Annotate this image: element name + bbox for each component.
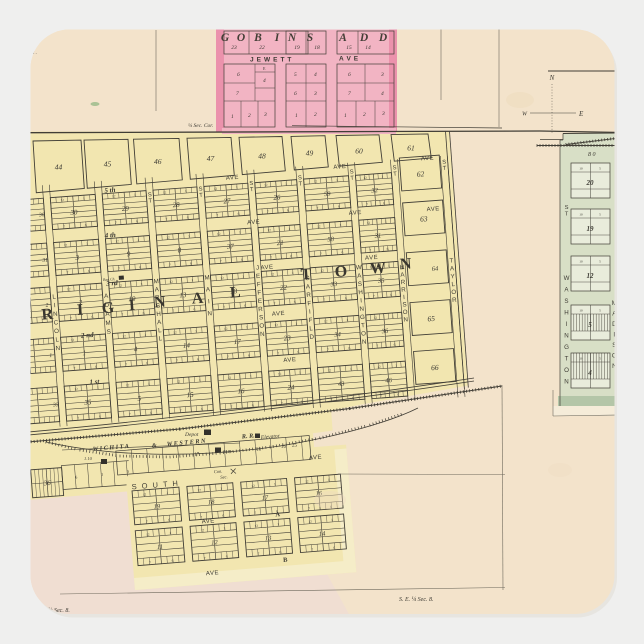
svg-text:W: W (356, 264, 362, 271)
svg-text:6: 6 (294, 91, 297, 97)
svg-text:I: I (128, 297, 135, 314)
svg-text:T: T (361, 322, 366, 329)
svg-text:H: H (156, 311, 161, 318)
svg-text:N: N (260, 331, 265, 338)
svg-text:1: 1 (82, 349, 86, 357)
svg-text:15: 15 (186, 391, 194, 400)
svg-text:15: 15 (346, 45, 352, 51)
svg-text:AVE: AVE (333, 164, 346, 171)
svg-text:13: 13 (179, 291, 187, 300)
svg-text:12: 12 (363, 176, 367, 180)
svg-text:14: 14 (183, 341, 191, 350)
svg-text:18: 18 (314, 45, 320, 51)
svg-text:20: 20 (586, 179, 595, 187)
svg-text:5: 5 (294, 72, 297, 78)
svg-text:AVE: AVE (283, 357, 296, 364)
svg-text:12: 12 (177, 379, 181, 383)
svg-text:12: 12 (308, 520, 312, 524)
svg-text:12: 12 (314, 179, 318, 183)
svg-text:1: 1 (231, 114, 234, 120)
svg-text:22: 22 (259, 45, 265, 51)
svg-text:12: 12 (60, 198, 64, 202)
svg-text:24: 24 (287, 383, 295, 392)
svg-text:16: 16 (237, 387, 245, 396)
svg-text:12: 12 (143, 493, 147, 497)
svg-text:12: 12 (197, 488, 201, 492)
svg-text:D: D (359, 32, 369, 44)
svg-text:1: 1 (344, 113, 347, 119)
svg-text:21: 21 (276, 239, 284, 247)
svg-text:O: O (402, 309, 407, 316)
svg-text:12: 12 (118, 283, 122, 287)
svg-text:11: 11 (157, 544, 164, 551)
svg-text:7: 7 (236, 91, 239, 97)
svg-text:T: T (449, 257, 454, 264)
svg-text:12: 12 (324, 319, 328, 323)
svg-text:N: N (287, 32, 297, 44)
svg-text:E: E (258, 298, 263, 305)
svg-text:5: 5 (127, 469, 129, 474)
svg-text:12: 12 (201, 528, 205, 532)
svg-text:S: S (565, 205, 569, 211)
svg-text:12: 12 (173, 330, 177, 334)
svg-text:29: 29 (122, 204, 130, 213)
svg-text:12: 12 (220, 276, 224, 280)
svg-text:4: 4 (381, 90, 384, 97)
svg-text:12: 12 (278, 372, 282, 376)
svg-text:E: E (256, 273, 261, 280)
svg-text:Depot: Depot (184, 432, 199, 438)
svg-text:AVE: AVE (309, 455, 323, 462)
svg-text:45: 45 (104, 160, 112, 169)
svg-text:4: 4 (263, 77, 266, 84)
svg-text:B: B (253, 32, 262, 44)
svg-text:AVE: AVE (206, 570, 220, 577)
svg-text:22: 22 (280, 284, 288, 293)
svg-text:N: N (53, 311, 58, 318)
svg-text:35: 35 (377, 277, 386, 285)
svg-text:35: 35 (52, 402, 59, 408)
svg-text:12: 12 (264, 183, 268, 187)
svg-text:M.H.: M.H. (222, 449, 232, 454)
svg-text:7: 7 (348, 91, 351, 97)
svg-text:6: 6 (237, 72, 240, 78)
svg-text:12: 12 (67, 287, 71, 291)
svg-text:12: 12 (251, 484, 255, 488)
svg-text:17: 17 (234, 338, 242, 347)
svg-text:F: F (307, 300, 312, 307)
svg-text:12: 12 (328, 368, 332, 372)
svg-text:N: N (207, 310, 212, 317)
svg-text:1 st: 1 st (89, 378, 101, 387)
svg-text:10: 10 (579, 357, 583, 361)
svg-text:23: 23 (231, 45, 237, 51)
svg-text:5: 5 (588, 321, 592, 329)
svg-text:12: 12 (163, 190, 167, 194)
svg-text:6: 6 (348, 72, 351, 78)
svg-text:12: 12 (587, 272, 595, 280)
svg-text:12: 12 (367, 221, 371, 225)
svg-text:12: 12 (74, 387, 78, 391)
svg-text:2 nd: 2 nd (80, 331, 95, 340)
svg-text:G: G (360, 314, 365, 321)
svg-text:E: E (578, 110, 584, 118)
svg-text:27: 27 (223, 197, 231, 206)
svg-text:A: A (191, 290, 204, 308)
svg-text:12: 12 (254, 524, 258, 528)
svg-text:AVE: AVE (349, 210, 362, 217)
svg-text:J: J (256, 265, 260, 272)
svg-text:N: N (564, 333, 568, 340)
svg-text:12: 12 (115, 239, 119, 243)
svg-text:10: 10 (579, 213, 583, 217)
svg-text:O: O (361, 330, 366, 337)
svg-text:12: 12 (274, 323, 278, 327)
svg-text:S: S (307, 32, 313, 44)
svg-text:W: W (369, 259, 386, 277)
svg-text:A: A (275, 511, 281, 518)
svg-text:3: 3 (380, 72, 384, 78)
svg-text:D: D (378, 32, 388, 44)
svg-text:G: G (101, 299, 115, 317)
svg-text:G: G (564, 344, 569, 351)
svg-text:3: 3 (381, 111, 385, 117)
svg-text:5: 5 (599, 260, 601, 264)
svg-text:10: 10 (579, 167, 583, 171)
svg-text:34: 34 (333, 331, 342, 339)
svg-text:H: H (564, 310, 568, 317)
svg-text:12: 12 (320, 269, 324, 273)
svg-text:R: R (41, 306, 54, 324)
svg-text:5: 5 (599, 167, 601, 171)
svg-text:N: N (153, 294, 166, 312)
svg-text:36: 36 (42, 479, 51, 488)
svg-text:10: 10 (579, 260, 583, 264)
svg-text:12: 12 (71, 338, 75, 342)
svg-text:I: I (274, 32, 280, 44)
svg-text:N: N (55, 345, 60, 352)
svg-text:1.10: 1.10 (84, 456, 93, 461)
svg-text:62: 62 (416, 169, 424, 179)
svg-text:2: 2 (363, 112, 366, 118)
svg-text:31: 31 (41, 258, 48, 264)
svg-text:S: S (259, 314, 264, 321)
svg-text:8 0: 8 0 (588, 152, 596, 158)
svg-text:2: 2 (314, 112, 317, 118)
svg-text:F: F (257, 289, 262, 296)
svg-text:AVE: AVE (272, 311, 285, 318)
svg-text:L: L (229, 284, 241, 302)
svg-text:O: O (237, 32, 245, 44)
svg-text:4: 4 (314, 71, 317, 78)
svg-text:Y: Y (450, 273, 455, 280)
svg-text:31: 31 (374, 233, 382, 241)
svg-text:12: 12 (112, 194, 116, 198)
svg-text:44: 44 (55, 162, 63, 171)
svg-text:12: 12 (377, 365, 381, 369)
svg-text:28: 28 (172, 201, 180, 210)
svg-text:12: 12 (217, 232, 221, 236)
svg-text:5: 5 (599, 309, 601, 313)
svg-text:47: 47 (207, 154, 215, 163)
svg-text:Con.: Con. (214, 469, 223, 475)
svg-text:N: N (564, 379, 568, 386)
svg-text:G: G (221, 32, 230, 44)
svg-text:N: N (549, 74, 555, 82)
svg-text:12: 12 (64, 243, 68, 247)
svg-text:A V E: A V E (339, 56, 359, 63)
svg-text:12: 12 (224, 327, 228, 331)
svg-text:I: I (566, 321, 568, 328)
svg-text:¼ Sec. Cor.: ¼ Sec. Cor. (188, 123, 213, 129)
svg-text:S: S (106, 329, 111, 336)
svg-text:O: O (54, 328, 59, 335)
svg-text:5: 5 (599, 213, 601, 217)
svg-text:19: 19 (587, 225, 595, 233)
svg-text:3: 3 (313, 91, 317, 97)
svg-text:61: 61 (407, 143, 415, 152)
svg-text:O: O (334, 263, 348, 281)
svg-text:5 th: 5 th (104, 186, 116, 195)
svg-text:AVE: AVE (247, 219, 260, 226)
svg-text:12: 12 (228, 376, 232, 380)
svg-text:12: 12 (271, 272, 275, 276)
svg-text:T: T (565, 211, 569, 217)
svg-text:J E W E T T: J E W E T T (250, 57, 292, 64)
svg-text:17: 17 (194, 452, 200, 457)
svg-text:S: S (402, 301, 407, 308)
svg-text:M: M (153, 278, 159, 285)
svg-text:23: 23 (283, 334, 291, 343)
svg-text:14: 14 (365, 44, 371, 51)
svg-text:H: H (358, 289, 363, 296)
svg-text:12: 12 (214, 187, 218, 191)
svg-text:R. R.: R. R. (241, 432, 256, 440)
svg-text:12: 12 (305, 479, 309, 483)
svg-text:W: W (564, 275, 570, 282)
svg-text:A: A (338, 32, 347, 44)
svg-text:19: 19 (294, 45, 300, 51)
svg-text:1: 1 (101, 472, 103, 477)
svg-text:&: & (152, 442, 158, 449)
svg-text:I: I (76, 302, 83, 319)
svg-text:O: O (451, 289, 456, 296)
svg-text:Sec.: Sec. (220, 474, 228, 480)
svg-text:T: T (565, 356, 569, 363)
svg-text:33: 33 (329, 281, 338, 289)
svg-text:12: 12 (317, 224, 321, 228)
svg-text:12: 12 (374, 316, 378, 320)
svg-text:S: S (358, 281, 363, 288)
svg-text:N: N (399, 255, 412, 273)
svg-text:37: 37 (226, 242, 235, 251)
svg-text:12: 12 (267, 228, 271, 232)
svg-text:48: 48 (258, 151, 266, 160)
svg-text:O: O (259, 322, 264, 329)
svg-text:2: 2 (248, 113, 251, 119)
svg-text:12: 12 (122, 334, 126, 338)
svg-text:1: 1 (295, 113, 298, 119)
svg-text:12: 12 (126, 383, 130, 387)
svg-text:N: N (359, 306, 364, 313)
svg-text:12: 12 (146, 533, 150, 537)
svg-text:S: S (564, 298, 568, 305)
svg-text:26: 26 (273, 193, 281, 202)
svg-text:AVE: AVE (260, 265, 273, 272)
svg-text:10: 10 (579, 309, 583, 313)
svg-text:N: N (362, 339, 367, 346)
svg-text:6: 6 (75, 474, 77, 479)
svg-text:16: 16 (281, 445, 287, 450)
svg-text:63: 63 (420, 214, 428, 224)
svg-text:49: 49 (306, 149, 314, 158)
svg-text:12: 12 (166, 236, 170, 240)
svg-text:60: 60 (355, 146, 363, 155)
svg-text:F: F (308, 317, 313, 324)
svg-text:32: 32 (370, 187, 379, 195)
svg-text:4: 4 (587, 369, 592, 377)
svg-text:F: F (257, 281, 262, 288)
svg-text:12: 12 (169, 280, 173, 284)
svg-text:5: 5 (599, 357, 601, 361)
svg-text:65: 65 (427, 314, 435, 324)
svg-text:3 rd: 3 rd (105, 279, 119, 288)
svg-text:46: 46 (154, 157, 162, 166)
svg-text:35: 35 (83, 398, 92, 407)
svg-text:30: 30 (38, 212, 45, 218)
svg-text:M: M (105, 320, 111, 327)
svg-text:4 th: 4 th (103, 231, 116, 240)
svg-text:N: N (403, 316, 408, 323)
svg-text:AVE: AVE (426, 206, 439, 213)
svg-text:O: O (564, 367, 569, 374)
svg-text:30: 30 (69, 208, 78, 217)
svg-text:3: 3 (263, 112, 267, 118)
svg-text:M: M (204, 274, 210, 281)
svg-text:T: T (300, 266, 312, 284)
svg-text:S. E. ¼ Sec. 8.: S. E. ¼ Sec. 8. (399, 597, 434, 603)
svg-text:36: 36 (380, 328, 389, 336)
svg-text:66: 66 (431, 363, 439, 373)
